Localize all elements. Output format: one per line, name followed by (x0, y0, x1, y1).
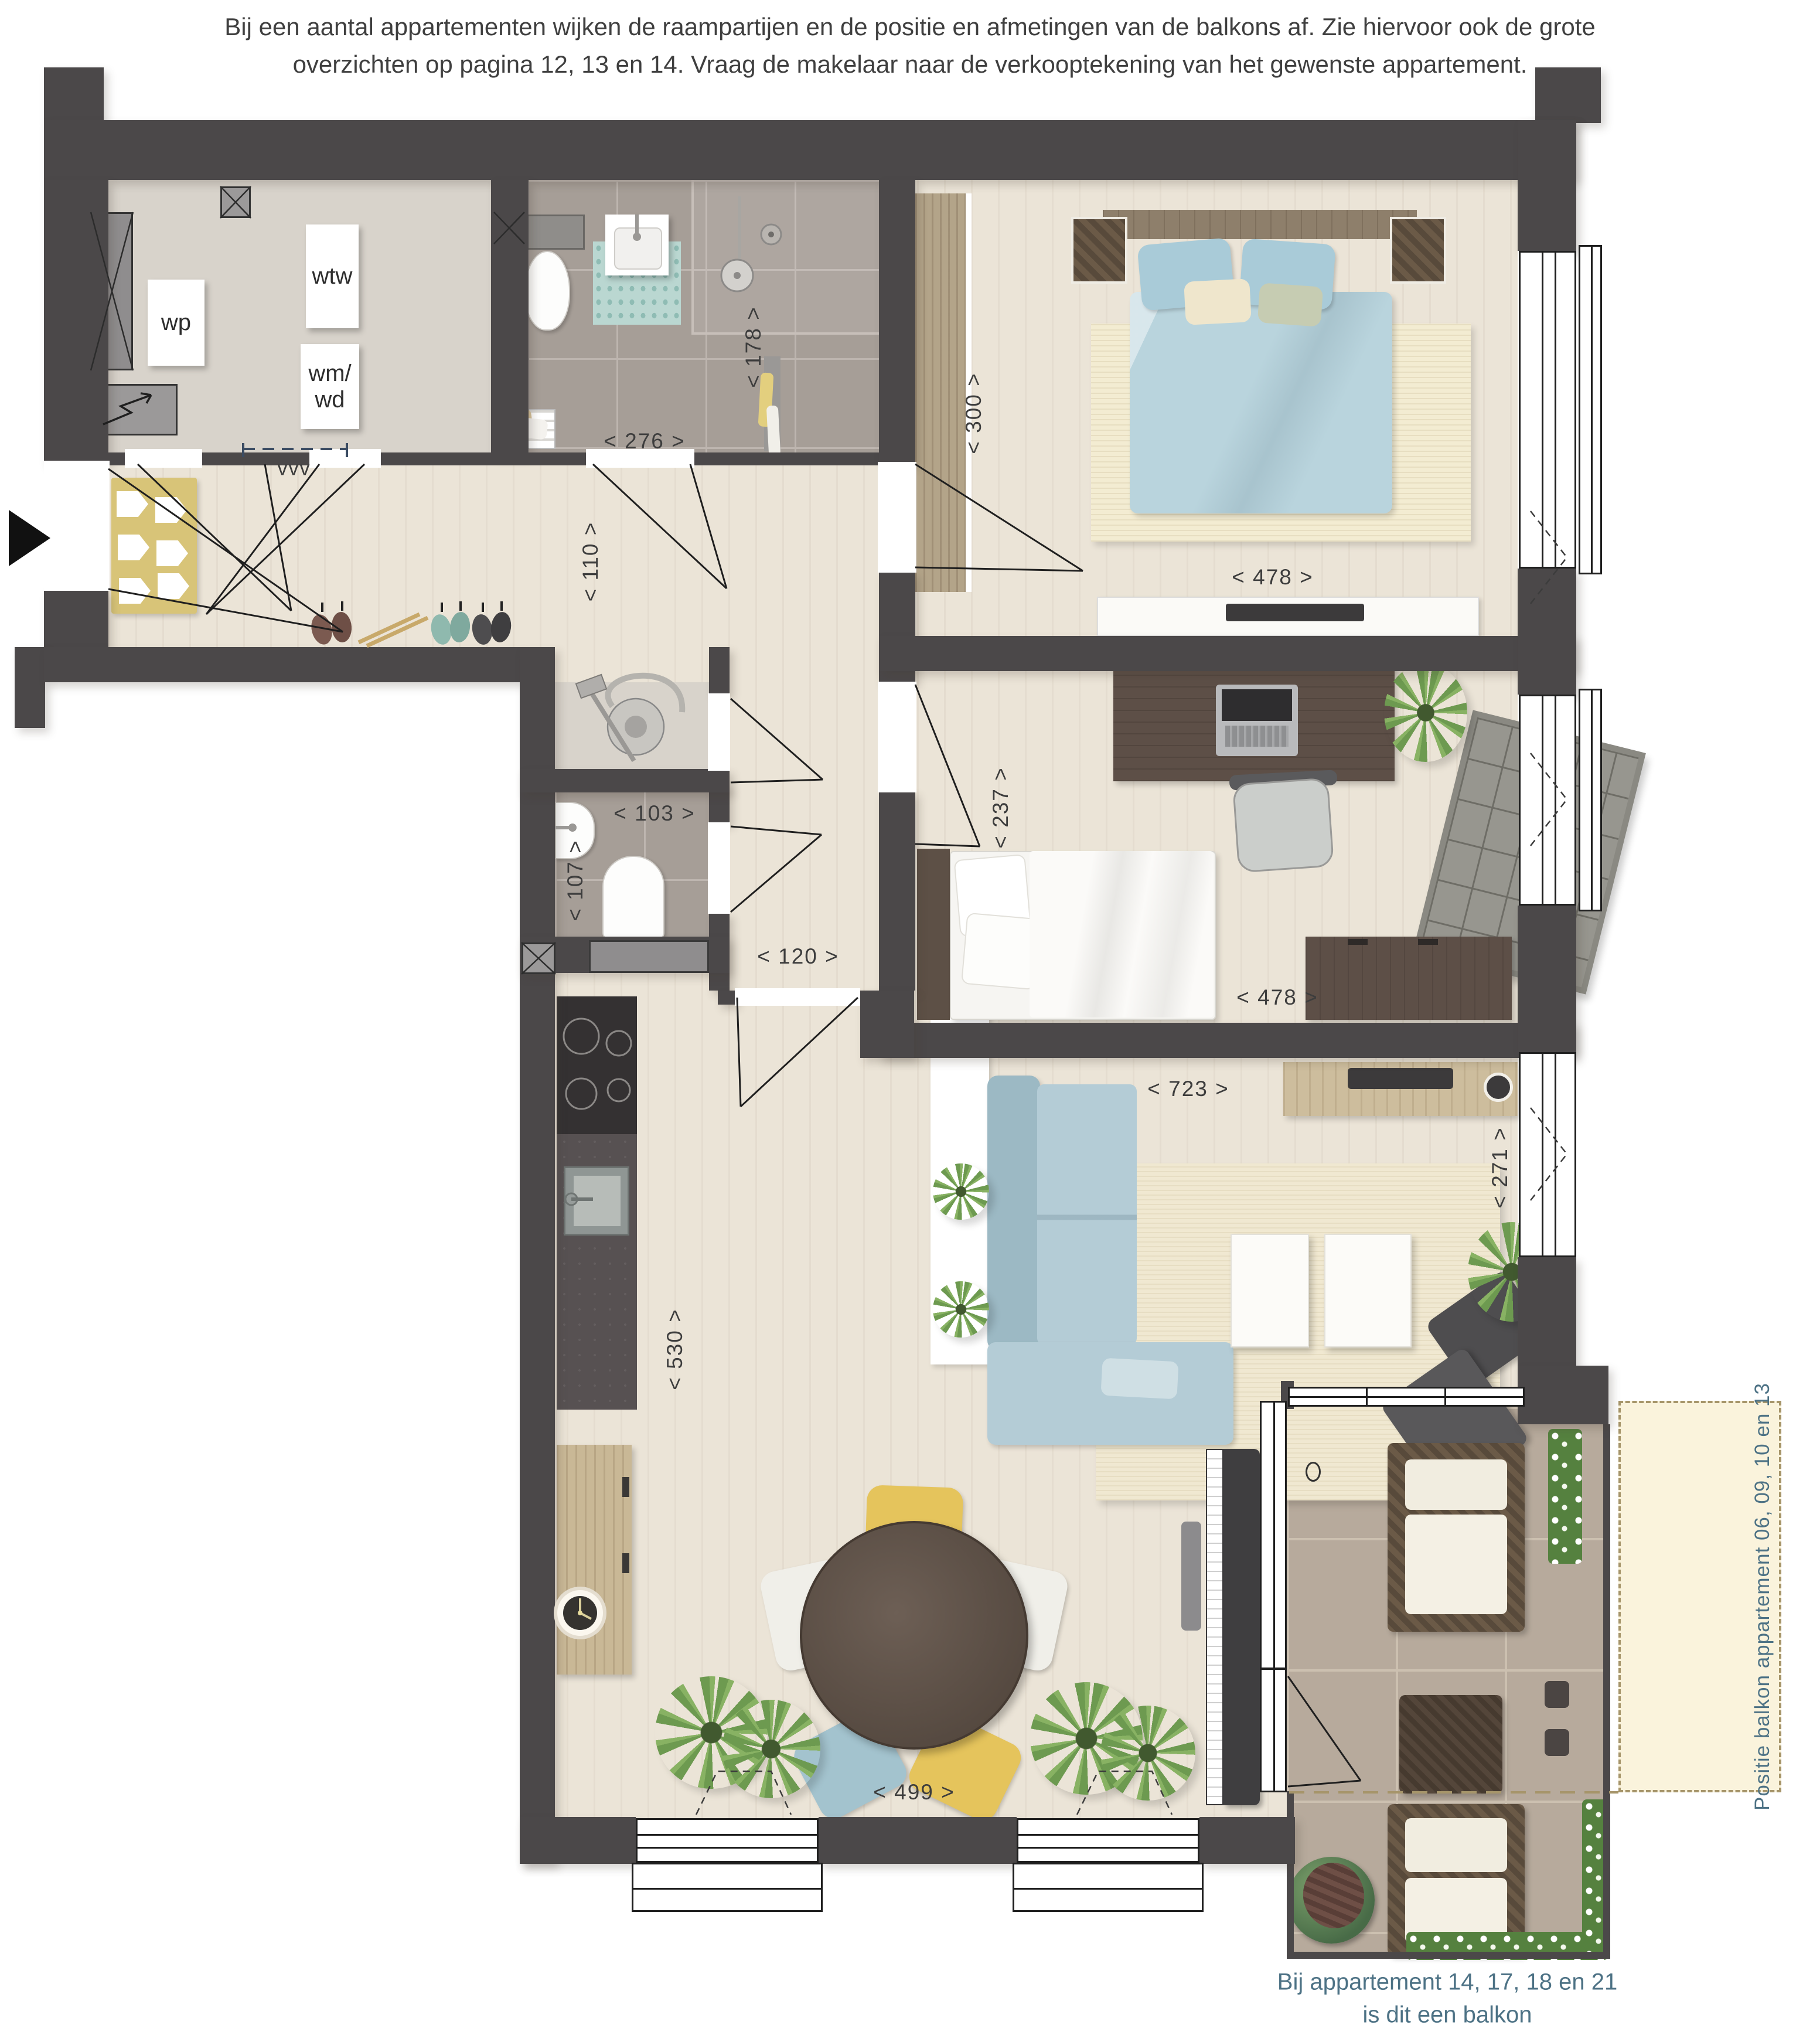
plant-dining-right (1100, 1706, 1195, 1801)
terrace-edge-bottom (1287, 1952, 1610, 1959)
window-frame-line (638, 1834, 817, 1836)
heat-pump-unit: wp (148, 280, 205, 366)
wall-right (1518, 1257, 1576, 1366)
bed1-pillow-cream (1184, 278, 1252, 325)
heat-recovery-unit: wtw (306, 224, 359, 328)
terrace-railing (1288, 1387, 1525, 1407)
wall-bottom (1199, 1817, 1295, 1864)
washer-dryer-unit: wm/ wd (301, 344, 359, 429)
dim-bedroom2-width: < 478 > (1236, 985, 1318, 1010)
terrace-pot (1545, 1729, 1569, 1756)
dim-bathroom-width: < 276 > (604, 429, 686, 454)
door-threshold-storage (708, 693, 730, 771)
window-frame-line (1542, 253, 1543, 567)
lounger-headrest (1405, 1818, 1507, 1872)
wall-left-upper (44, 180, 108, 463)
wall-stub (718, 991, 735, 1005)
window-frame-line (1273, 1670, 1275, 1791)
tv-bedroom1 (1226, 604, 1364, 621)
terrace-edge-right (1603, 1424, 1610, 1959)
bed1-pillow-green (1257, 283, 1323, 326)
plant-bedroom2 (1384, 663, 1467, 762)
bed2-headboard (917, 849, 950, 1020)
sun-lounger (1388, 1443, 1525, 1632)
dim-living-depth: < 271 > (1488, 1127, 1512, 1209)
dim-dining-width: < 499 > (873, 1780, 955, 1805)
terrace-edge-left (1287, 1791, 1294, 1958)
vent-duct-box (522, 942, 555, 974)
window-bay-2 (1013, 1863, 1204, 1912)
door-threshold-bedroom2 (878, 682, 916, 792)
terrace-drain (1306, 1462, 1321, 1482)
railing-line (1444, 1389, 1446, 1405)
doormat (111, 478, 197, 614)
wall-left-column (520, 647, 555, 1864)
laptop-keyboard (1225, 726, 1289, 747)
balcony-caption-line1: Bij appartement 14, 17, 18 en 21 (1277, 1969, 1617, 1996)
entrance-opening (44, 461, 110, 591)
floor-storage (555, 682, 709, 769)
header-line-2: overzichten op pagina 12, 13 en 14. Vraa… (0, 46, 1820, 83)
wall-storage-wc-divider (520, 769, 730, 792)
bed2-pillow (961, 913, 1041, 991)
piano-keys (1206, 1449, 1223, 1805)
wall-tech-bath-divider (491, 180, 529, 454)
sofa-back (987, 1076, 1040, 1351)
laptop-screen (1222, 689, 1292, 721)
bed2-duvet (1030, 851, 1214, 1017)
dim-wc-depth: < 107 > (563, 839, 588, 921)
window-bottom-2 (1017, 1818, 1199, 1863)
door-threshold-bedroom1 (878, 462, 916, 573)
wall-mid-vertical (879, 180, 915, 463)
dresser-handle (1418, 939, 1438, 945)
dresser-handle (1348, 939, 1368, 945)
doormat-house-icon (117, 491, 148, 517)
coffee-table (1231, 1234, 1309, 1347)
cabinet-handle (622, 1553, 629, 1573)
cabinet-handle (622, 1477, 629, 1497)
doormat-house-icon (158, 573, 189, 599)
bed2-dresser (1306, 937, 1512, 1020)
wall-bottom (819, 1817, 1017, 1864)
window-frame-line (1555, 696, 1556, 904)
window-bedroom2 (1519, 695, 1576, 906)
window-frame-line (1542, 696, 1543, 904)
nightstand-left (1071, 217, 1127, 284)
floorplan-page: Bij een aantal appartementen wijken de r… (0, 0, 1820, 2035)
heat-pump-label: wp (161, 309, 191, 336)
wall-left-lower (44, 590, 108, 647)
window-frame-line (1591, 247, 1593, 573)
coat-hook (341, 601, 343, 611)
toilet-wc (602, 856, 664, 939)
sink-bowl (574, 1176, 621, 1226)
coffee-table (1324, 1234, 1412, 1347)
planter-flowers (1548, 1429, 1582, 1564)
toilet-bathroom (524, 251, 570, 331)
bathroom-sink (605, 215, 669, 275)
wall-mid-vertical (879, 791, 915, 991)
window-bay-1 (632, 1863, 823, 1912)
vent-shaft (589, 940, 709, 973)
plant-dining-left (722, 1700, 820, 1798)
wall-right (1518, 569, 1576, 695)
coat-hook (482, 603, 484, 612)
dim-kitchen-depth: < 530 > (663, 1308, 687, 1390)
wall-top (44, 120, 1576, 180)
heat-recovery-label: wtw (312, 263, 353, 290)
dim-hall-passage: < 120 > (757, 944, 839, 969)
sofa-seat (1037, 1084, 1137, 1345)
wall-right (1518, 120, 1576, 251)
bed1-headboard (1103, 210, 1417, 239)
wall-stub-exterior (15, 647, 45, 728)
lounger-headrest (1405, 1459, 1507, 1510)
window-bedroom1 (1519, 251, 1576, 569)
wall-bedroom2-bottom (879, 1023, 1576, 1058)
sink-basin (614, 227, 662, 270)
wicker-table (1399, 1695, 1502, 1794)
wall-stub (860, 991, 914, 1058)
coat-hook (441, 603, 443, 612)
speaker (1484, 1073, 1513, 1102)
window-frame-line (1591, 690, 1593, 910)
window-living (1519, 1052, 1576, 1257)
dim-bedroom1-depth: < 300 > (962, 372, 986, 454)
shower-area (691, 180, 881, 335)
window-frame-line (1273, 1403, 1275, 1668)
piano-bench (1181, 1522, 1201, 1631)
bbq-lid (1297, 1857, 1370, 1934)
piano-body (1223, 1449, 1260, 1805)
desk-chair (1232, 777, 1334, 873)
nightstand-right (1390, 217, 1446, 284)
dim-living-width: < 723 > (1147, 1077, 1229, 1101)
window-frame-line (1014, 1888, 1202, 1890)
wardrobe-bedroom1 (915, 193, 966, 592)
window-frame-line (1018, 1834, 1198, 1836)
cooktop (557, 996, 637, 1134)
dining-cabinet (557, 1445, 632, 1675)
balcony-side-note: Positie balkon appartement 06, 09, 10 en… (1751, 1383, 1774, 1811)
door-threshold-living (735, 988, 860, 1006)
plant-console (933, 1281, 989, 1338)
window-frame-line (1542, 1054, 1543, 1255)
doormat-house-icon (118, 535, 149, 560)
lounger-cushion (1405, 1515, 1507, 1614)
window-frame-line (1555, 1054, 1556, 1255)
dim-bathroom-depth: < 178 > (741, 306, 766, 388)
railing-line (1366, 1389, 1368, 1405)
window-frame-line (638, 1847, 817, 1849)
washer-label: wm/ (308, 360, 351, 387)
exterior-area (0, 682, 520, 2035)
doormat-house-icon (155, 497, 187, 523)
kitchen-sink (564, 1166, 629, 1236)
bed1-duvet (1130, 292, 1392, 513)
doormat-house-icon (119, 578, 151, 604)
window-outer-frame (1579, 245, 1602, 574)
dim-bedroom2-depth: < 237 > (989, 767, 1013, 849)
wall-bedroom1-bottom (879, 636, 1576, 671)
window-frame-line (1555, 253, 1556, 567)
balcony-caption-line2: is dit een balkon (1362, 2002, 1532, 2029)
railing-line (1290, 1396, 1523, 1398)
terrace-pot (1545, 1681, 1569, 1708)
vvv-label: vvv (278, 458, 311, 481)
plant-console (933, 1163, 989, 1220)
window-frame-line (633, 1888, 821, 1890)
dim-hall-width: < 110 > (578, 522, 603, 602)
door-threshold (309, 449, 381, 468)
laptop (1216, 685, 1298, 756)
wall-rooms-bottom (108, 452, 879, 465)
door-threshold (125, 449, 202, 468)
dining-table (800, 1521, 1028, 1750)
coat-hook (459, 601, 462, 611)
coat-hook (500, 601, 503, 611)
wall-hall-bottom (44, 647, 520, 682)
dim-bedroom1-width: < 478 > (1232, 565, 1314, 590)
sofa-pillow (1100, 1358, 1178, 1400)
wall-storage-right (709, 647, 730, 695)
wall-bottom (520, 1817, 636, 1864)
dim-wc-width: < 103 > (614, 801, 696, 826)
window-bottom-1 (636, 1818, 819, 1863)
dryer-label: wd (315, 387, 345, 413)
door-threshold-wc (708, 822, 730, 914)
page-header: Bij een aantal appartementen wijken de r… (0, 8, 1820, 83)
bbq-kamado (1288, 1857, 1375, 1944)
wall-right (1518, 906, 1576, 1052)
window-outer-frame (1579, 689, 1602, 911)
duct-box (220, 186, 251, 218)
header-line-1: Bij een aantal appartementen wijken de r… (0, 8, 1820, 46)
window-frame-line (1018, 1847, 1198, 1849)
coat-hook (321, 603, 323, 612)
tv-living (1348, 1068, 1453, 1089)
doormat-house-icon (156, 540, 188, 566)
terrace-window (1260, 1401, 1287, 1669)
terrace-door (1260, 1668, 1287, 1792)
